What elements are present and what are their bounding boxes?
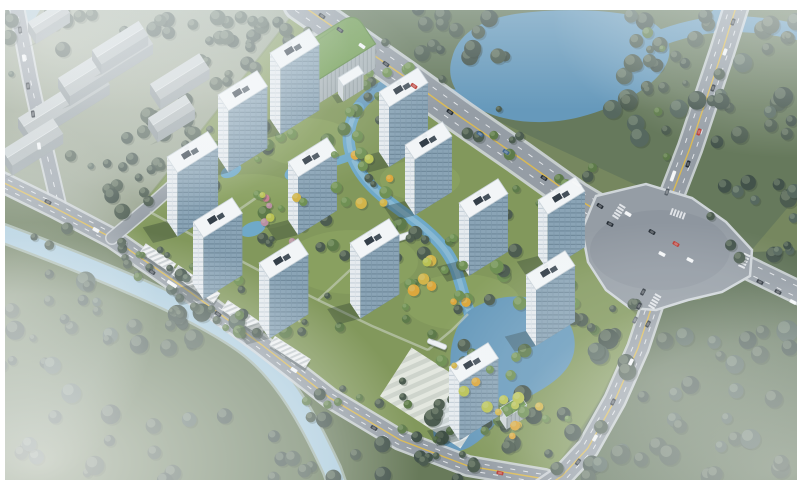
rendering-canvas xyxy=(0,0,800,485)
aerial-masterplan-rendering xyxy=(0,0,800,485)
